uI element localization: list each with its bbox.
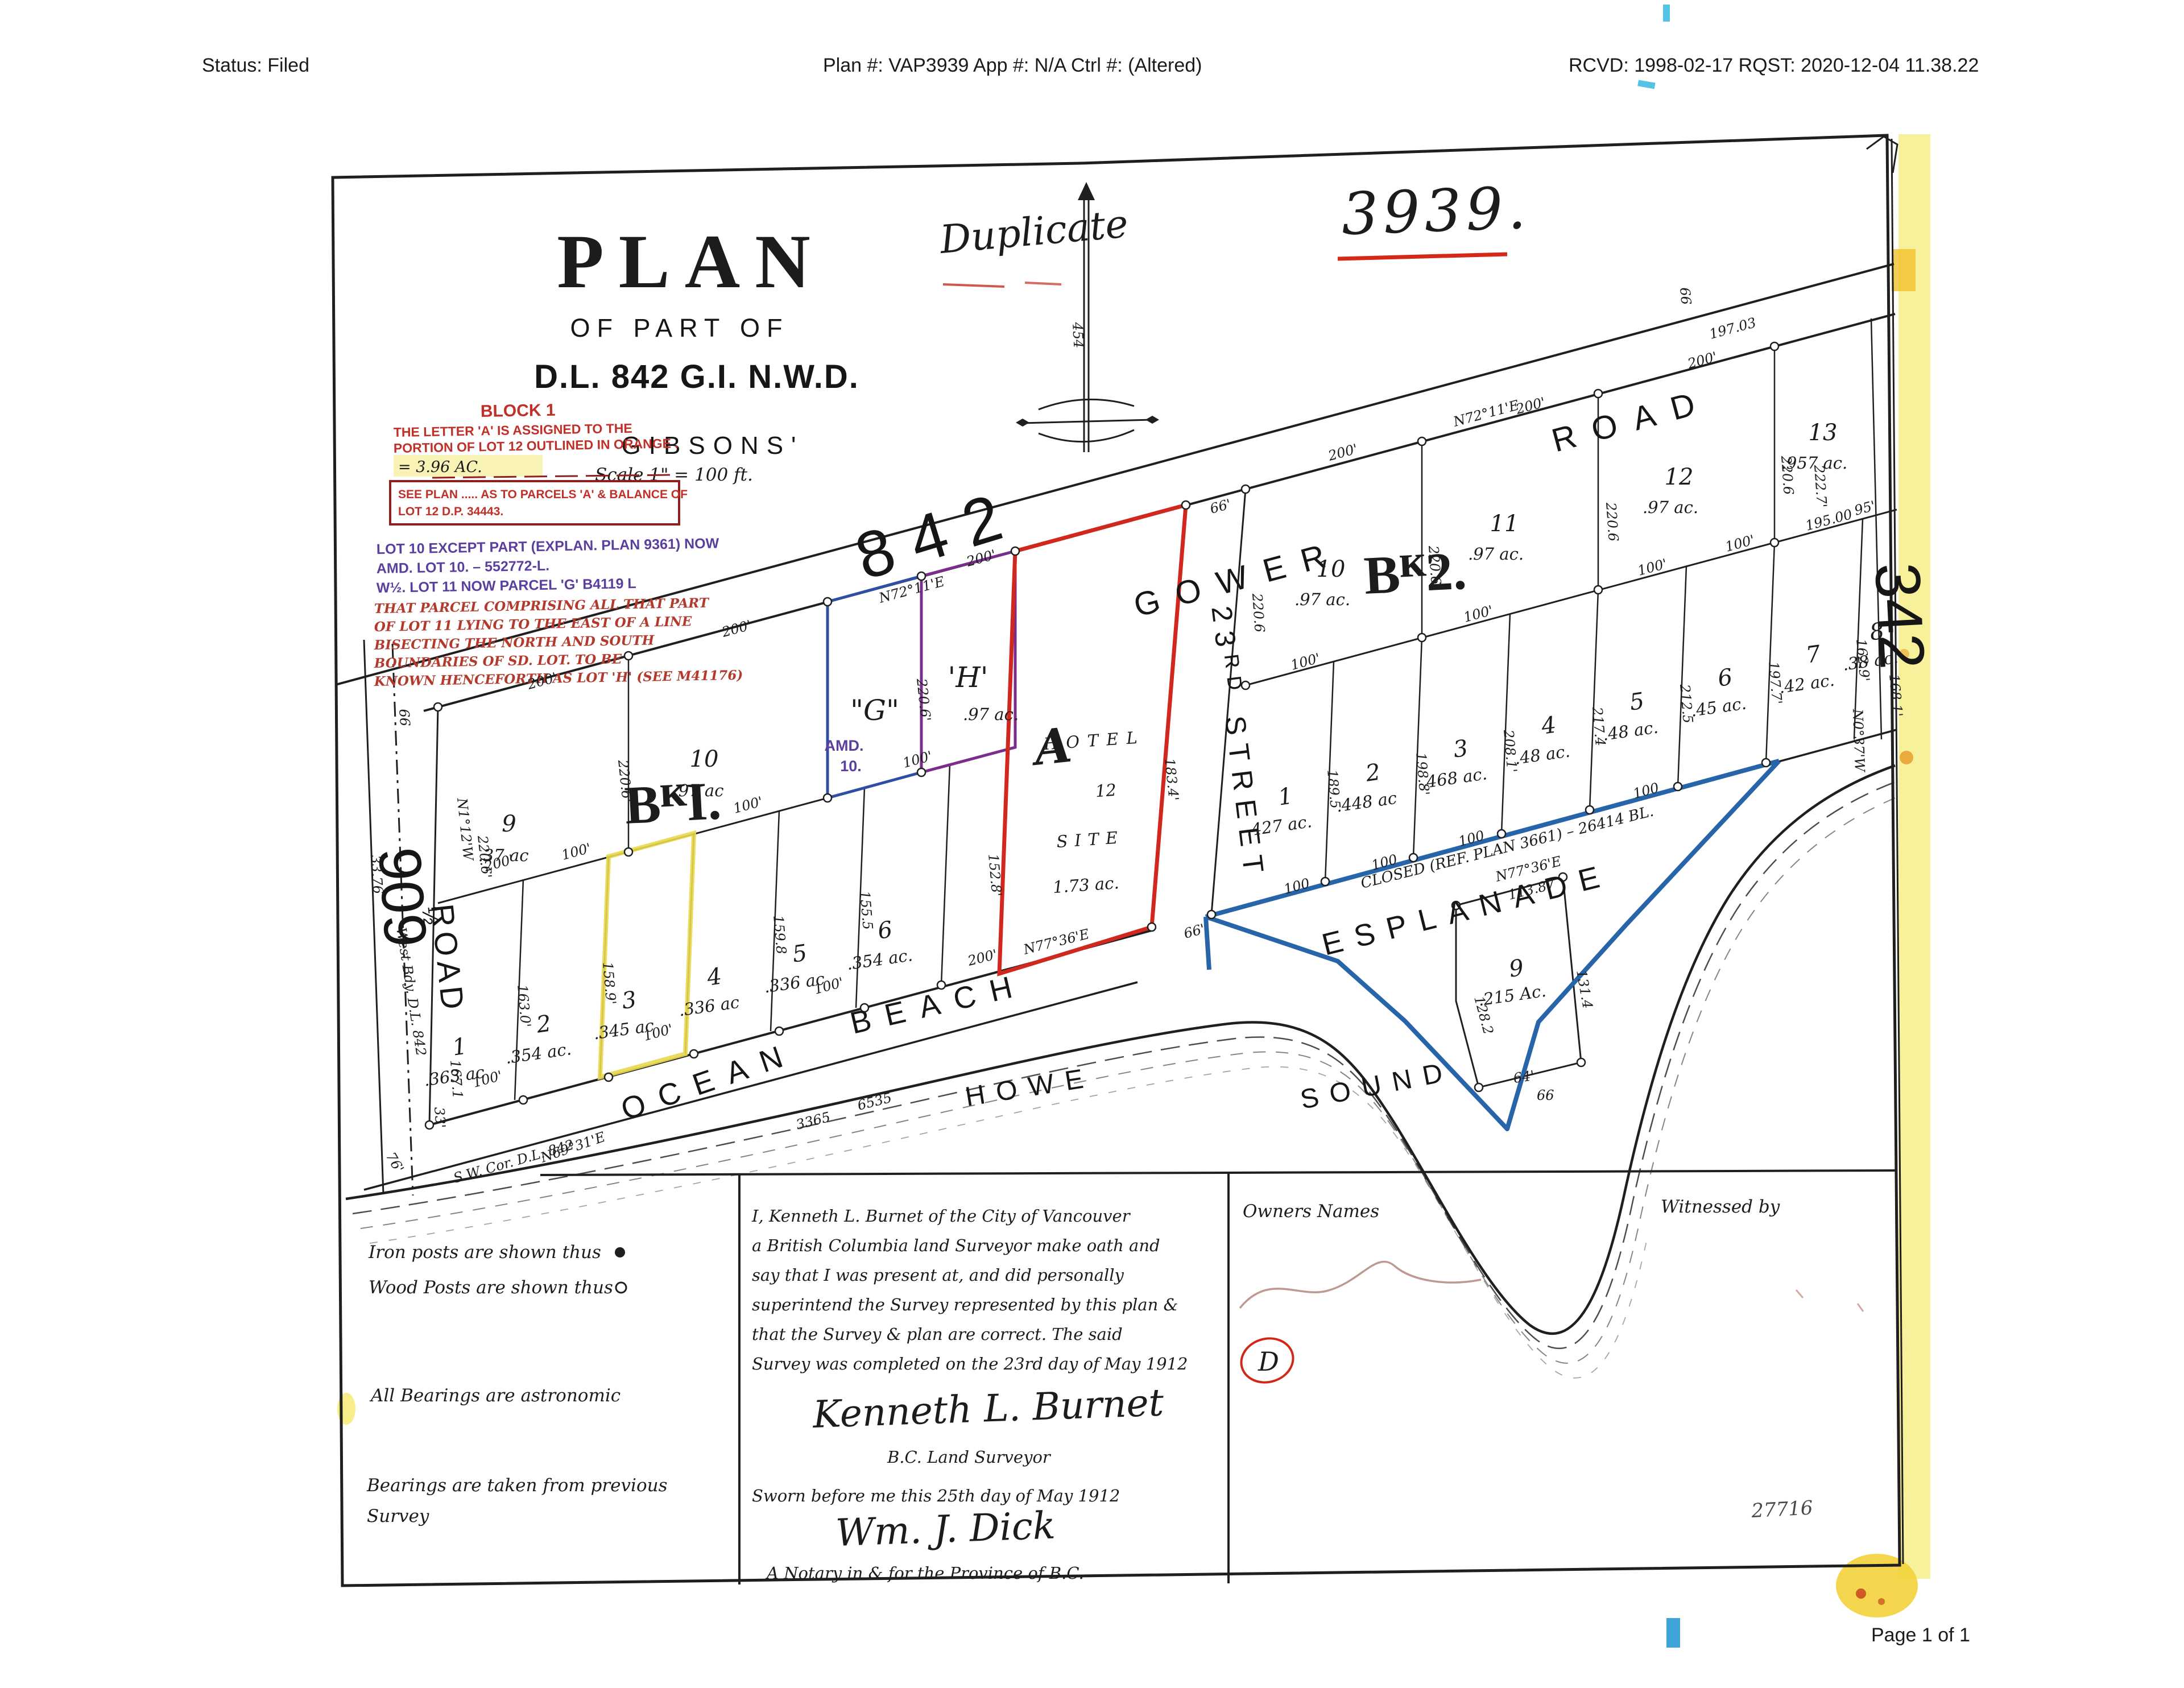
dim-label: 200' <box>966 946 999 969</box>
dim-label: 220.6 <box>1249 592 1268 633</box>
witnessed-by-label: Witnessed by <box>1661 1197 1780 1217</box>
dim-label: 155.5 <box>857 890 876 930</box>
lot-number: 6 <box>876 917 894 945</box>
duplicate-underline <box>943 283 1061 287</box>
declaration-line: a British Columbia land Surveyor make oa… <box>752 1236 1160 1255</box>
bearing-label: N77°36'E <box>1021 926 1091 958</box>
dim-label: 220.6 <box>1778 454 1797 495</box>
block2-label: Bᴷ2. <box>1363 540 1468 606</box>
lot-area: .354 ac. <box>846 945 914 974</box>
dim-label: 6535 <box>856 1090 894 1114</box>
lot-number: 4 <box>705 963 723 991</box>
notary-signature: Wm. J. Dick <box>835 1504 1056 1555</box>
dim-label: 100 <box>1282 875 1311 897</box>
lot-area: .48 ac. <box>1513 741 1571 768</box>
dim-label: 189.5 <box>1324 769 1343 809</box>
dim-label: 208.1' <box>1500 729 1520 773</box>
legend-bearings-1: All Bearings are astronomic <box>369 1385 621 1406</box>
dim-label: 220.6 <box>1603 501 1622 542</box>
parcel-h-note-line5: KNOWN HENCEFORTH AS LOT 'H' (SEE M41176) <box>374 668 743 689</box>
owner-signature-mark <box>1240 1261 1481 1308</box>
notary-role: A Notary in & for the Province of B.C. <box>765 1563 1084 1583</box>
hotel-site-label: SITE <box>1056 828 1125 851</box>
dim-label: 76' <box>383 1149 407 1176</box>
parcel-h-label: 'H' <box>948 661 988 694</box>
lot-number: 2 <box>1363 759 1382 787</box>
declaration-line: I, Kenneth L. Burnet of the City of Vanc… <box>751 1206 1131 1226</box>
iron-post-icon <box>615 1247 625 1257</box>
dim-label: 167.1 <box>447 1059 466 1099</box>
dim-label: 100' <box>560 840 593 863</box>
sworn-statement: Sworn before me this 25th day of May 191… <box>752 1486 1120 1505</box>
parcel-h-area: .97 ac. <box>963 705 1019 724</box>
dim-label: 33' <box>431 1106 449 1128</box>
declaration-line: Survey was completed on the 23rd day of … <box>752 1354 1188 1373</box>
hotel-area: 1.73 ac. <box>1052 873 1120 897</box>
lot-number: 5 <box>791 940 809 968</box>
plan-number-stamp: 3939. <box>1341 174 1532 249</box>
lot-number: 9 <box>502 811 516 837</box>
wood-post-icon <box>616 1282 626 1293</box>
lot-area: .42 ac. <box>1778 670 1836 697</box>
dim-label: 220.6 <box>1425 544 1444 585</box>
dim-label: 66' <box>1182 921 1206 942</box>
dim-label: 152.8' <box>985 853 1004 897</box>
legend-iron-posts: Iron posts are shown thus <box>368 1242 601 1263</box>
lot-area: .97 ac. <box>1643 498 1698 517</box>
lot-area: .48 ac. <box>1602 717 1660 744</box>
amended-label-2: 10. <box>840 758 862 775</box>
dim-label: 66 <box>1677 287 1694 305</box>
dim-label: 220.6' <box>913 677 934 722</box>
dim-label: 100' <box>1289 650 1322 673</box>
dim-label: 159.8 <box>770 915 789 955</box>
dim-label: 100 <box>1631 780 1660 802</box>
street-23rd: 23ᴿᴰ STREET <box>1205 604 1271 883</box>
circled-letter: D <box>1258 1346 1279 1377</box>
plan-scan: PLAN OF PART OF D.L. 842 G.I. N.W.D. GIB… <box>0 0 2184 1688</box>
lot-number: 11 <box>1490 511 1519 537</box>
lot-area: .97 ac <box>673 781 724 800</box>
lot-number: 5 <box>1628 688 1646 716</box>
lot-number: 4 <box>1539 712 1558 740</box>
dim-label: 220.6' <box>615 759 635 804</box>
dim-label: 454 <box>1069 321 1086 349</box>
dim-label: 222.7' <box>1811 464 1830 508</box>
acreage-note: = 3.96 AC. <box>398 458 482 476</box>
plan-number-underline <box>1338 254 1507 259</box>
dim-label: 200' <box>1685 349 1719 372</box>
dim-label: 131.4 <box>1573 969 1596 1010</box>
legend-panel: Iron posts are shown thus Wood Posts are… <box>366 1242 667 1526</box>
dim-label: 212.5 <box>1677 683 1696 724</box>
street-beach: BEACH <box>847 967 1029 1041</box>
declaration-panel: I, Kenneth L. Burnet of the City of Vanc… <box>751 1206 1188 1583</box>
lot-area: .45 ac. <box>1690 693 1748 720</box>
plan-title: PLAN <box>557 220 825 304</box>
dim-label: 183.4' <box>1161 758 1182 802</box>
hotel-lot-number: 12 <box>1095 780 1117 801</box>
dim-label: 197.03 <box>1707 315 1757 342</box>
stamp-box-line1: SEE PLAN ..... AS TO PARCELS 'A' & BALAN… <box>398 488 688 501</box>
dim-label: 100' <box>1723 532 1756 555</box>
owners-panel: Owners Names Witnessed by D 27716 <box>1236 1197 1863 1522</box>
lot-area: .354 ac. <box>504 1039 573 1068</box>
dim-label: 64' <box>1512 1068 1536 1086</box>
cyan-marks <box>1637 5 1680 1648</box>
declaration-line: that the Survey & plan are correct. The … <box>752 1325 1123 1344</box>
panel-dividers <box>540 1170 1897 1584</box>
legend-bearings-2: Bearings are taken from previous <box>366 1475 667 1496</box>
parcel-h-note-line1: THAT PARCEL COMPRISING ALL THAT PART <box>374 595 710 617</box>
lot-area: .97 ac. <box>1468 544 1524 564</box>
lot-number: 1 <box>1276 783 1294 811</box>
lot-number: 2 <box>534 1011 553 1039</box>
district-lot-title: D.L. 842 G.I. N.W.D. <box>534 358 859 395</box>
lot-number: 13 <box>1809 420 1838 446</box>
lot-number: 3 <box>1451 735 1470 763</box>
dim-label: 100' <box>901 748 934 771</box>
amendment-note-line2: AMD. LOT 10. – 552772-L. <box>377 558 550 577</box>
dim-label: 100' <box>731 793 764 817</box>
lot-number: 6 <box>1716 664 1734 692</box>
legend-wood-posts: Wood Posts are shown thus <box>369 1277 613 1298</box>
declaration-line: say that I was present at, and did perso… <box>752 1265 1124 1285</box>
surveyor-role: B.C. Land Surveyor <box>887 1447 1052 1467</box>
dim-label: 66 <box>396 708 413 726</box>
dim-label: 100' <box>1636 556 1669 579</box>
block1-stamp-title: BLOCK 1 <box>481 401 556 421</box>
west-boundary-label: West Bdy. D.L. 842 <box>393 926 429 1057</box>
lot-number: 10 <box>1317 556 1346 582</box>
parcel-h-note-line3: BISECTING THE NORTH AND SOUTH <box>374 632 655 653</box>
owners-names-label: Owners Names <box>1243 1201 1379 1222</box>
block1-label: BᴷI. <box>623 770 723 835</box>
dim-label: 33.76 <box>367 854 386 895</box>
bearing-label: N1°12'W <box>454 797 477 863</box>
lot-number: 7 <box>1804 641 1822 669</box>
dim-label: 168.1' <box>1886 673 1905 717</box>
dim-label: 200' <box>719 617 753 640</box>
faint-number-note: 27716 <box>1750 1496 1813 1522</box>
amendment-note-line1: LOT 10 EXCEPT PART (EXPLAN. PLAN 9361) N… <box>377 535 719 557</box>
duplicate-stamp: Duplicate <box>937 201 1130 263</box>
north-arrow-icon <box>1078 182 1095 200</box>
legend-bearings-3: Survey <box>367 1506 429 1526</box>
amendment-note-line3: W½. LOT 11 NOW PARCEL 'G' B4119 L <box>377 576 636 596</box>
lot-number: 3 <box>620 987 638 1015</box>
amended-label-1: AMD. <box>825 737 864 754</box>
bearing-label: N0°37'W <box>1850 708 1868 773</box>
dim-label: 195.00 <box>1804 506 1854 534</box>
parcel-h-note-line2: OF LOT 11 LYING TO THE EAST OF A LINE <box>374 614 692 635</box>
parcel-g-label: "G" <box>850 694 899 727</box>
lot-area: .97 ac. <box>1294 590 1350 609</box>
lot-number: 12 <box>1665 464 1694 490</box>
dim-label: 200' <box>1513 394 1547 417</box>
lot-area: .448 ac <box>1335 788 1398 816</box>
declaration-line: superintend the Survey represented by th… <box>752 1295 1178 1314</box>
plan-subtitle: OF PART OF <box>570 313 789 342</box>
dim-label: 66 <box>1537 1087 1554 1103</box>
stamp-box-line2: LOT 12 D.P. 34443. <box>398 505 503 518</box>
lot-number: 9 <box>1507 955 1525 983</box>
surveyor-signature: Kenneth L. Burnet <box>812 1380 1165 1437</box>
dim-label: 100' <box>1462 602 1495 626</box>
street-gower-road: ROAD <box>1548 381 1716 459</box>
lot-number: 10 <box>690 746 719 772</box>
lot-number: 1 <box>450 1033 469 1061</box>
